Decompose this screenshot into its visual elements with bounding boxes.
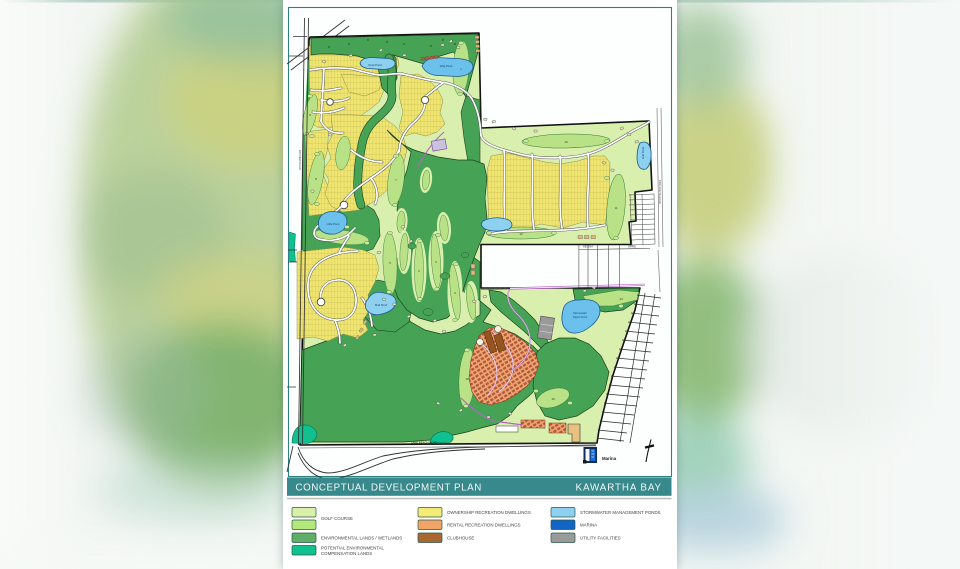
svg-text:RENTAL RECREATION DWELLINGS: RENTAL RECREATION DWELLINGS [447,523,521,528]
svg-text:POTENTIAL ENVIRONMENTAL: POTENTIAL ENVIRONMENTAL [321,546,384,551]
svg-text:Mud Pond: Mud Pond [375,303,388,307]
svg-text:Stormwater: Stormwater [573,311,587,315]
svg-text:COMPENSATION LANDS: COMPENSATION LANDS [321,551,372,556]
svg-text:MARINA: MARINA [580,523,597,528]
svg-text:FIRE ROUTE ROAD: FIRE ROUTE ROAD [658,180,662,204]
svg-text:Marina: Marina [602,456,617,461]
svg-text:GOLF COURSE: GOLF COURSE [321,516,353,521]
svg-text:Little Pond: Little Pond [327,222,340,226]
svg-text:10: 10 [564,140,568,144]
svg-text:CONCEPTUAL DEVELOPMENT PLAN: CONCEPTUAL DEVELOPMENT PLAN [296,482,482,493]
svg-text:BAYVIEW ROAD: BAYVIEW ROAD [298,150,302,170]
svg-text:REGINA: REGINA [583,245,593,249]
svg-text:Mgmt Pond: Mgmt Pond [573,315,587,319]
svg-text:STORMWATER MANAGEMENT PONDS: STORMWATER MANAGEMENT PONDS [580,510,661,515]
svg-text:16: 16 [465,377,469,381]
svg-text:11: 11 [614,206,617,210]
svg-text:OWNERSHIP RECREATION DWELLINGS: OWNERSHIP RECREATION DWELLINGS [447,510,531,515]
svg-text:LAKE BEACH ROAD: LAKE BEACH ROAD [411,441,437,445]
svg-text:15: 15 [551,397,555,401]
svg-text:14: 14 [619,297,623,301]
svg-text:CLUBHOUSE: CLUBHOUSE [447,536,474,541]
svg-text:ENVIRONMENTAL LANDS / WETLANDS: ENVIRONMENTAL LANDS / WETLANDS [321,536,402,541]
svg-text:Duck Pond: Duck Pond [368,63,382,67]
svg-text:Wtlg Pond: Wtlg Pond [440,64,453,68]
svg-text:UTILITY FACILITIES: UTILITY FACILITIES [580,536,621,541]
svg-text:12: 12 [519,232,523,236]
svg-text:Golf Pond: Golf Pond [641,147,645,159]
svg-text:DRIVE: DRIVE [628,245,636,249]
svg-text:KAWARTHA BAY: KAWARTHA BAY [576,482,662,493]
